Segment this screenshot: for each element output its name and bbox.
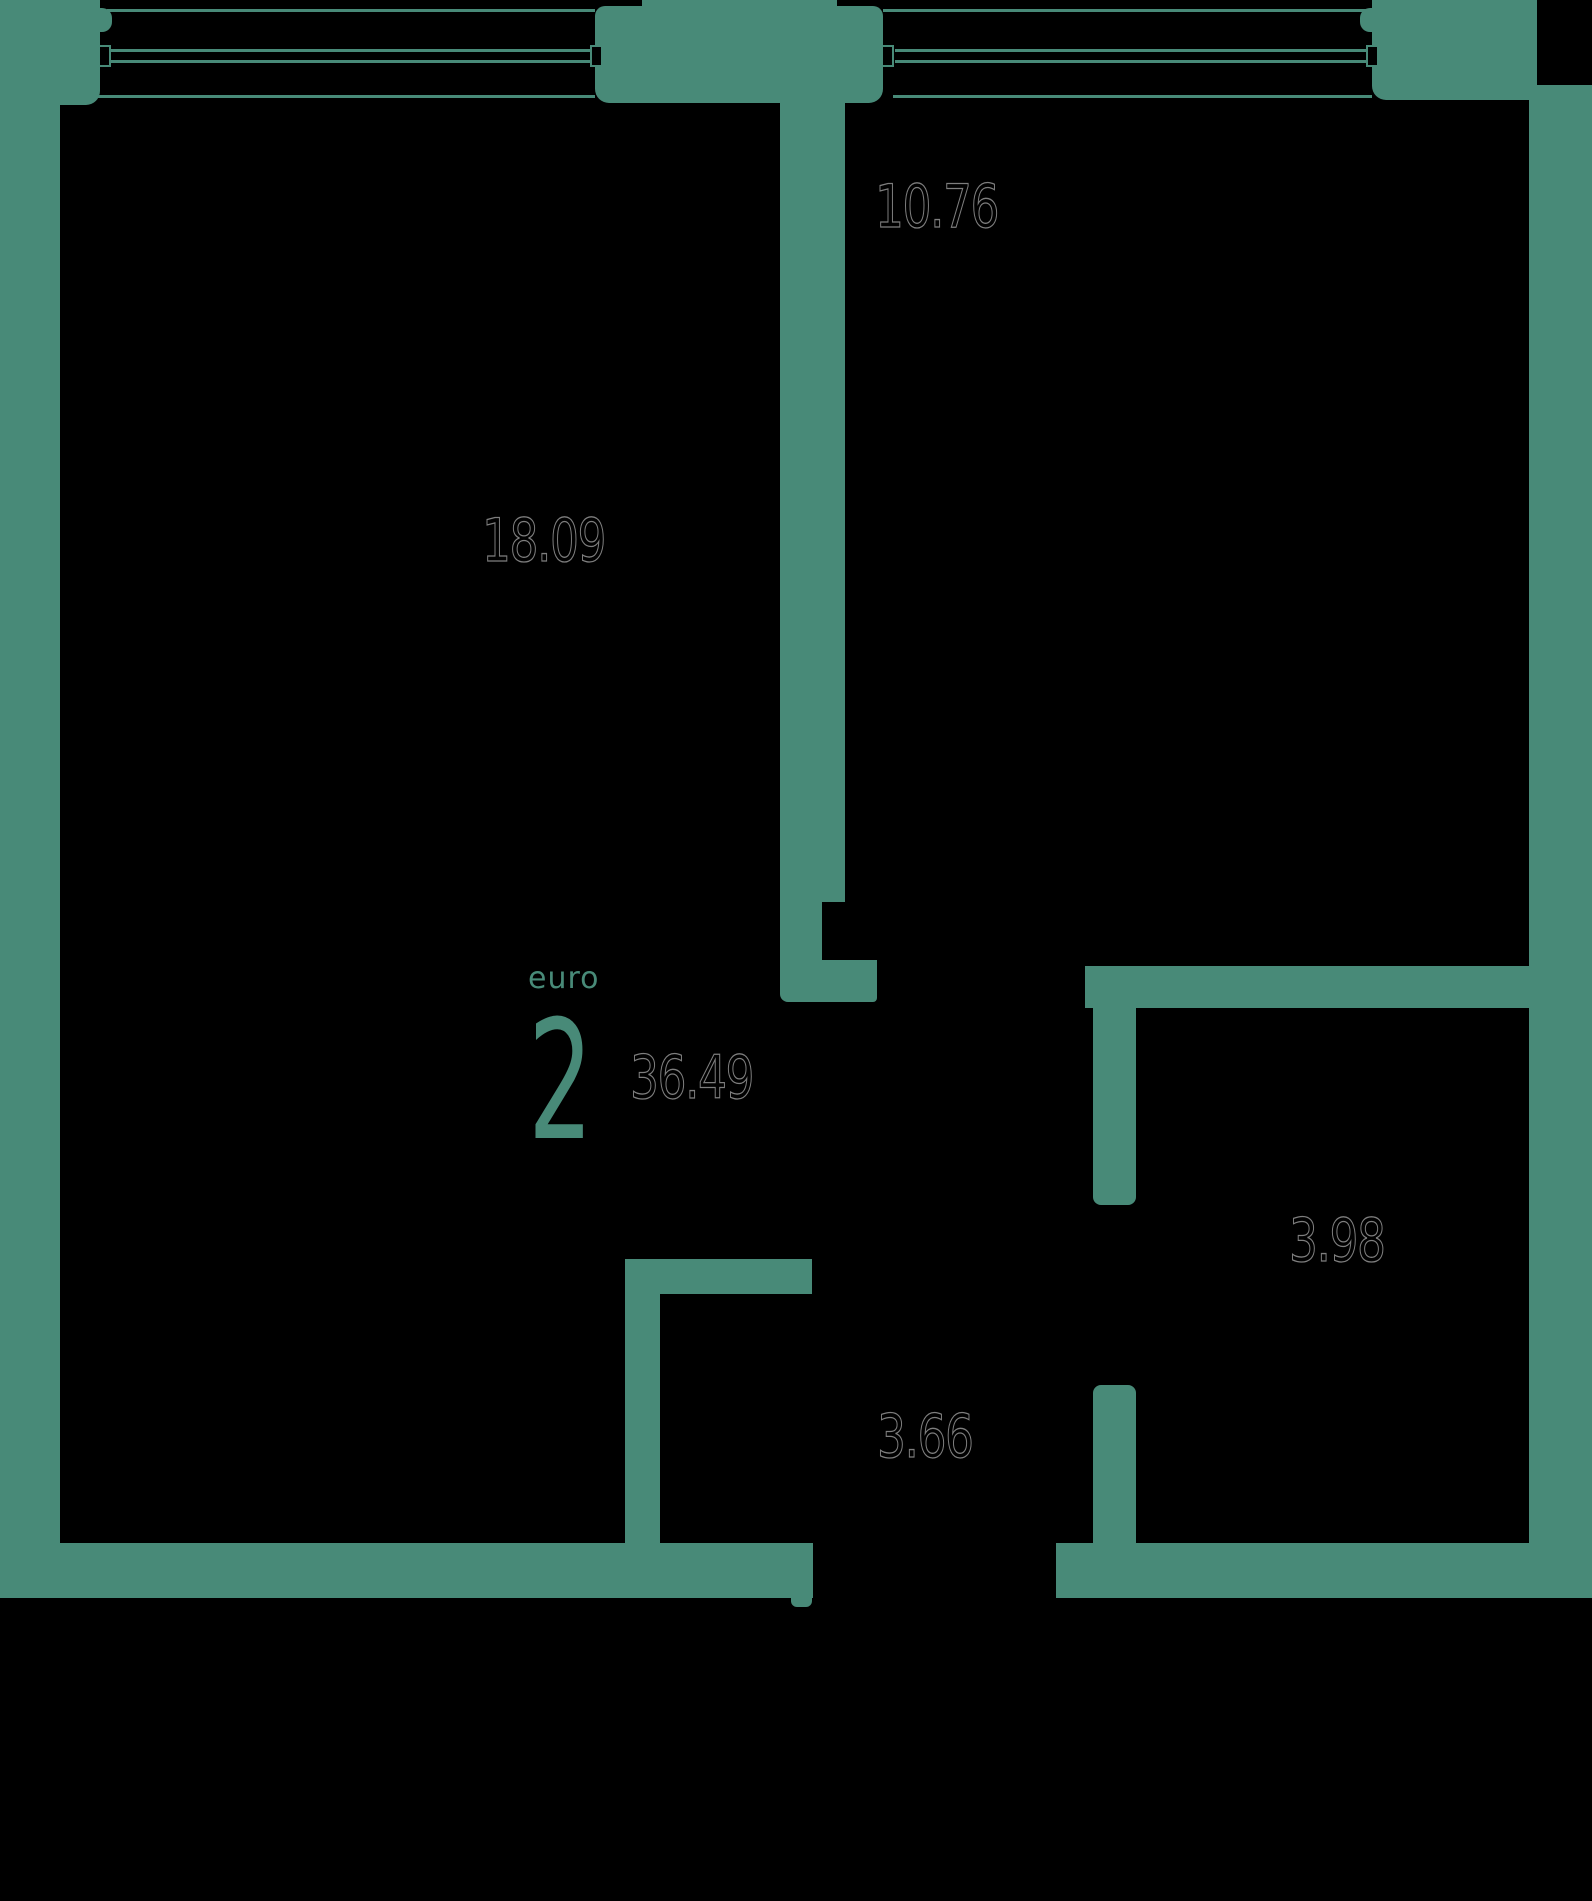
wall-corner-top-right — [1372, 0, 1537, 100]
area-label-bedroom: 10.76 — [875, 177, 998, 237]
wall-corner-top-left — [0, 0, 100, 105]
wall-bath-left-upper — [1093, 1008, 1136, 1205]
window-right-frame-line-b — [895, 60, 1368, 63]
window-right-inner-line — [893, 95, 1372, 98]
wall-right — [1529, 85, 1592, 1598]
wall-bedroom-divider-upper — [780, 98, 845, 902]
window-right-end-cap-left — [881, 45, 894, 67]
wall-bedroom-divider-narrow — [780, 902, 822, 960]
wall-bath-left-lower — [1093, 1385, 1136, 1543]
wall-hall-vertical — [625, 1259, 660, 1543]
wall-bottom-left-segment — [0, 1543, 813, 1598]
area-label-living: 18.09 — [482, 511, 605, 571]
window-right-outer-line — [883, 9, 1372, 12]
unit-total-area: 36.49 — [630, 1048, 753, 1108]
wall-bedroom-divider-foot — [780, 960, 877, 1002]
window-right-frame-line-a — [895, 49, 1368, 52]
wall-bath-top — [1085, 966, 1539, 1008]
wall-bottom-right-segment — [1056, 1543, 1592, 1598]
window-left-outer-line — [107, 9, 595, 12]
unit-room-count: 2 — [528, 999, 593, 1164]
area-label-hall: 3.66 — [877, 1407, 972, 1467]
wall-left — [0, 0, 60, 1598]
floor-plan: 18.09 10.76 3.98 3.66 euro 2 36.49 — [0, 0, 1592, 1901]
wall-top-center-pier — [595, 6, 883, 103]
window-right-end-cap-right — [1366, 45, 1379, 67]
window-left-frame-line-a — [111, 49, 592, 52]
window-left-frame-line-b — [111, 60, 592, 63]
window-left-inner-line — [97, 95, 595, 98]
area-label-bath: 3.98 — [1289, 1211, 1384, 1271]
window-left-end-cap-left — [98, 45, 111, 67]
entrance-door-jamb-nub — [791, 1596, 812, 1607]
window-left-end-cap-right — [590, 45, 603, 67]
